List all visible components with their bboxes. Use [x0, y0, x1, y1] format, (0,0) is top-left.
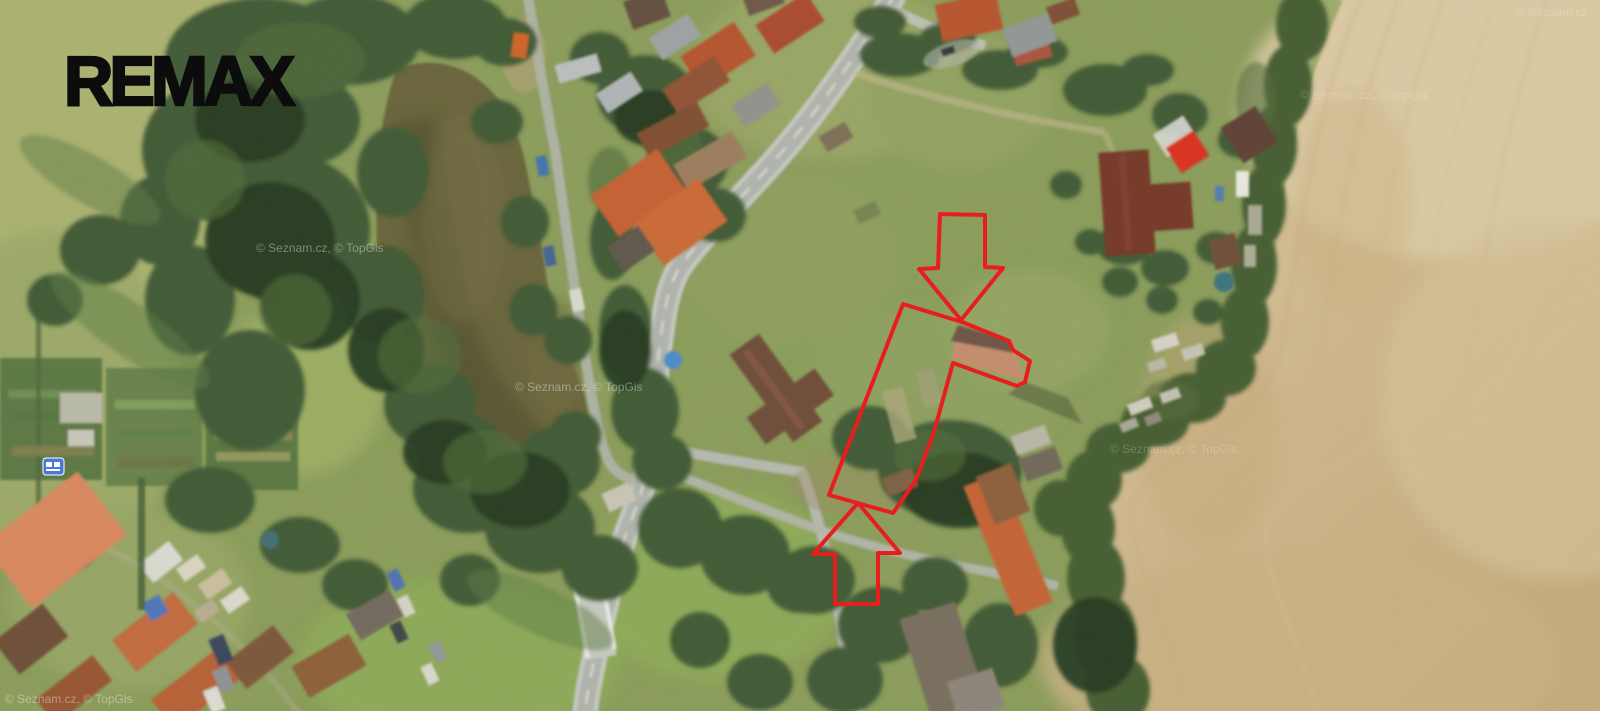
- svg-text:© Seznam.cz: © Seznam.cz: [1516, 5, 1588, 19]
- svg-text:© Seznam.cz, © TopGis: © Seznam.cz, © TopGis: [1300, 88, 1428, 102]
- svg-text:© Seznam.cz, © TopGis: © Seznam.cz, © TopGis: [5, 692, 133, 706]
- svg-text:© Seznam.cz, © TopGis: © Seznam.cz, © TopGis: [256, 241, 384, 255]
- svg-text:© Seznam.cz, © TopGis: © Seznam.cz, © TopGis: [515, 380, 643, 394]
- svg-text:© Seznam.cz, © TopGis: © Seznam.cz, © TopGis: [1110, 442, 1238, 456]
- svg-text:REMAX: REMAX: [64, 42, 295, 120]
